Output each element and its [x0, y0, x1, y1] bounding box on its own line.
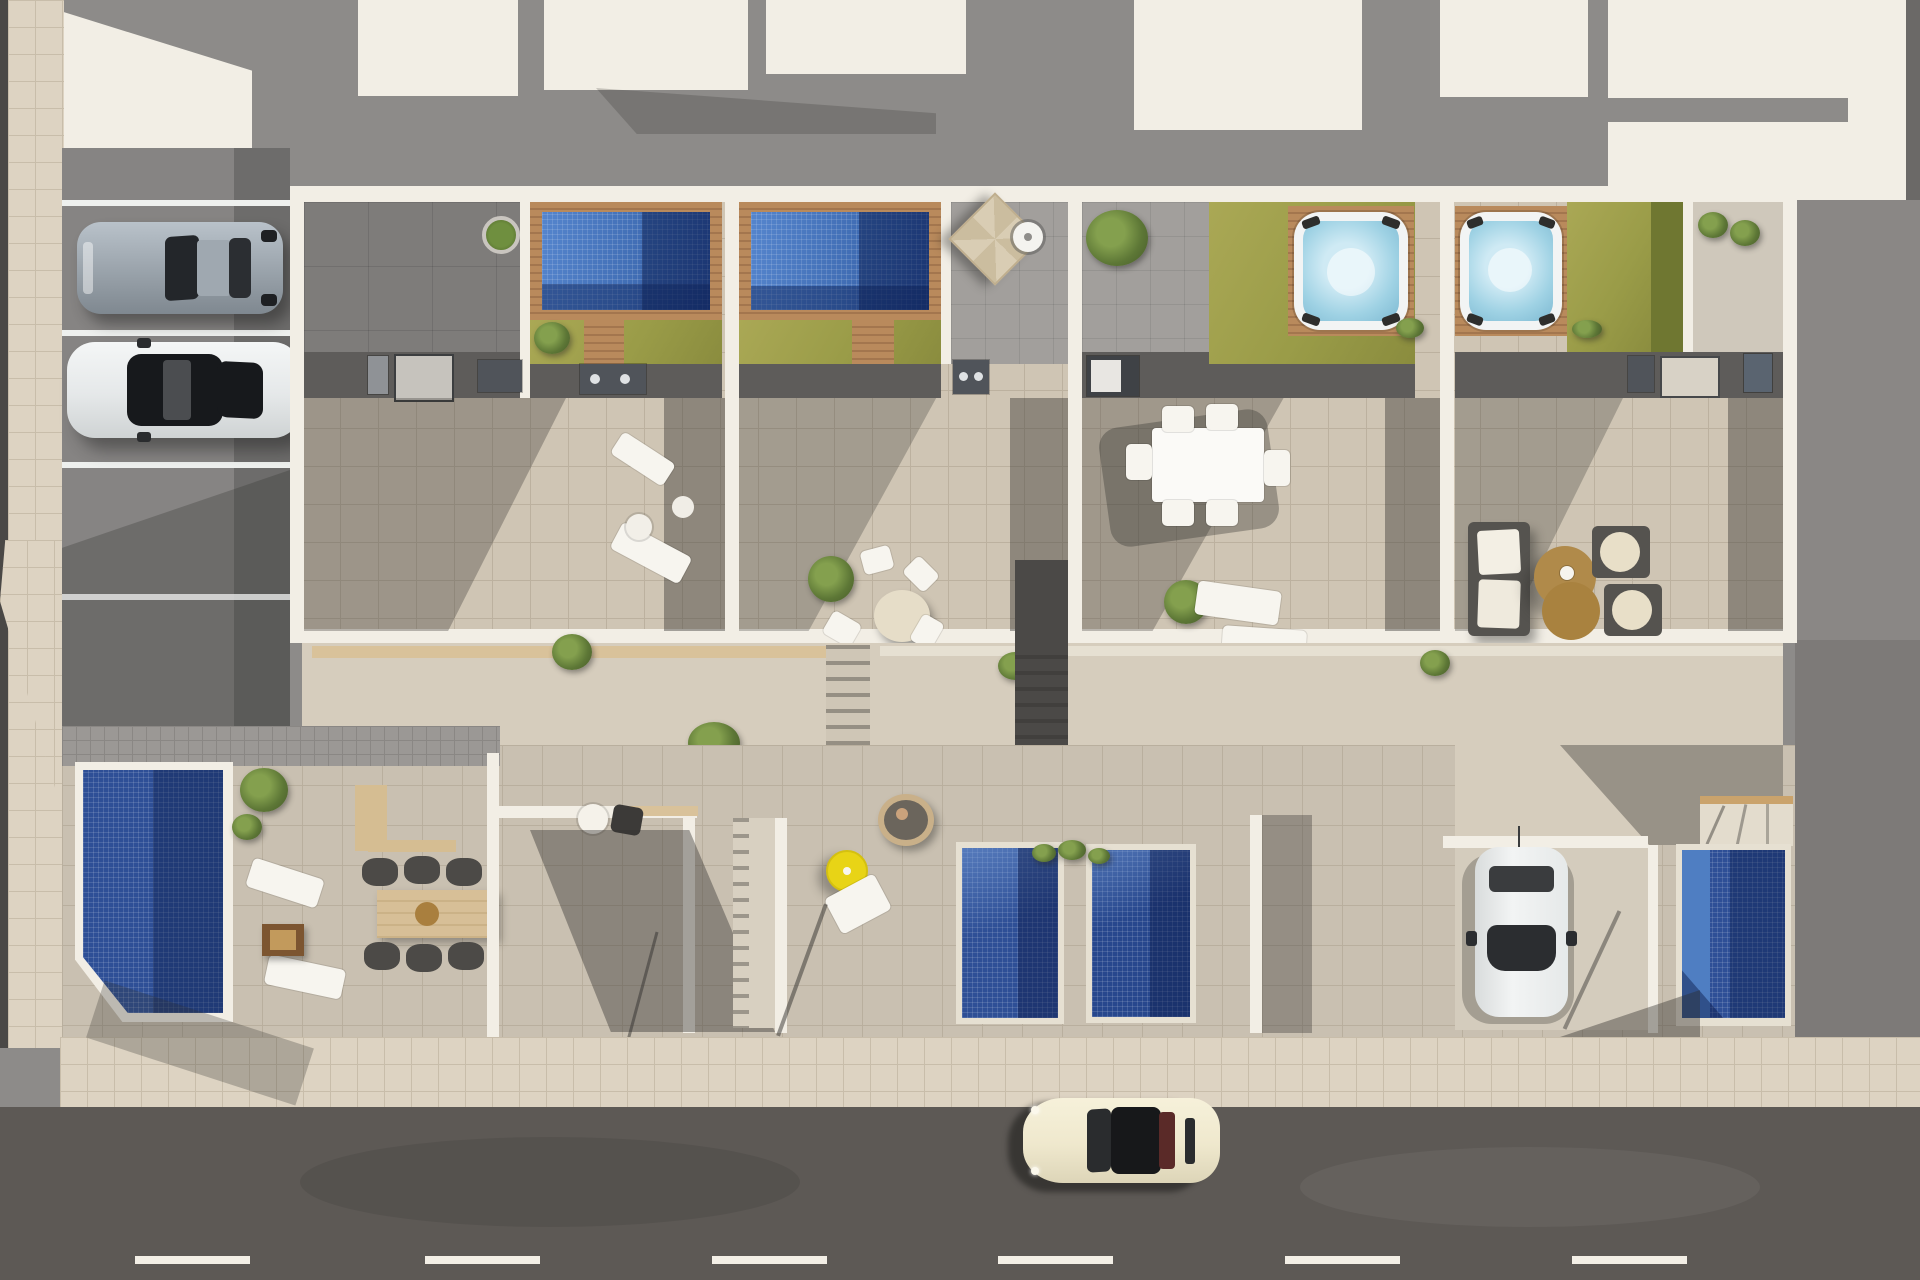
unitA-gray-tile-strip — [62, 726, 500, 766]
sink-bowl-2 — [620, 374, 630, 384]
unit4-sofa-frame — [1468, 522, 1530, 636]
white-car-mirror-top — [137, 338, 151, 348]
unit3-chair-e — [1264, 450, 1290, 486]
car-D-rear-glass — [1489, 866, 1554, 892]
cream-car-engine-vent — [1185, 1118, 1195, 1164]
roof-block-6-parapet-shadow — [1608, 98, 1848, 122]
unit3-wall-shadow-strip — [1385, 398, 1440, 631]
left-edge-wall — [0, 0, 8, 1048]
lane-dash-4 — [998, 1256, 1113, 1264]
fire-table-top — [270, 930, 296, 950]
parked-car-white — [67, 342, 301, 438]
unit2-sink-unit — [953, 360, 989, 394]
stair-line — [1766, 804, 1769, 846]
armchair-cushion — [1600, 532, 1640, 572]
pool-C-deep — [1150, 850, 1190, 1017]
unit4-appliance-1 — [1628, 356, 1654, 392]
unit3-chair-s1 — [1162, 500, 1194, 526]
unit4-table-decor — [1560, 566, 1574, 580]
terrace-top-wall — [290, 186, 1795, 202]
unit4-outdoor-kitchen — [1660, 356, 1720, 398]
silver-car-windshield — [165, 235, 199, 301]
lane-dash-6 — [1572, 1256, 1687, 1264]
unit4-coffee-table-2 — [1542, 582, 1600, 640]
rooftop-pool-1-water — [542, 212, 710, 310]
unit1-wall-shadow-strip — [664, 398, 725, 631]
sink-bowl — [974, 372, 983, 381]
sofa-cushion-1 — [1477, 529, 1521, 575]
unitB-bistro-table — [578, 804, 608, 834]
ground-pool-B-water — [962, 848, 1058, 1018]
unit3-dining-table — [1152, 428, 1264, 502]
ground-pool-C-water — [1092, 850, 1190, 1017]
unit1-lawn-bush — [534, 322, 570, 354]
unit4-kitchen-band — [1455, 352, 1783, 398]
unit1-outdoor-kitchen — [394, 354, 454, 402]
unit3-bbq-unit — [1087, 356, 1139, 396]
unitA-fire-table — [262, 924, 304, 956]
silver-car-rear-vent-r — [261, 294, 277, 306]
pool-2-shelf-shadow — [751, 286, 929, 310]
staircase-steps-edge — [733, 818, 749, 1028]
terrace-right-wall — [1783, 186, 1797, 643]
roof-block-3 — [766, 0, 966, 74]
silver-car-rear-glass — [229, 238, 251, 298]
street-car-cream — [1023, 1098, 1220, 1183]
unitA-chair-s1 — [364, 942, 400, 970]
right-lot-shaded — [1795, 640, 1920, 1040]
unit3-kitchen-band-b — [1209, 364, 1415, 398]
sink-bowl — [959, 372, 968, 381]
white-car-roof — [163, 360, 191, 420]
stairwell-steps — [1015, 655, 1068, 745]
unit1-side-table — [626, 514, 652, 540]
unit2-lawn — [739, 320, 941, 364]
lane-dash-1 — [135, 1256, 250, 1264]
unitA-chair-n3 — [446, 858, 482, 886]
unit1-lawn-steps — [584, 320, 624, 364]
roof-right-edge — [1906, 0, 1920, 210]
pool-vine-2 — [1058, 840, 1086, 860]
unit4-armchair-1 — [1592, 526, 1650, 578]
road-patch-1 — [300, 1137, 800, 1227]
roof-block-2 — [544, 0, 748, 90]
unit1-sink-unit — [580, 364, 646, 394]
cream-car-windshield — [1087, 1108, 1111, 1172]
unit1-potted-plant — [482, 216, 520, 254]
divider-shadow — [1262, 815, 1312, 1033]
unit4-palm-small-2 — [1730, 220, 1760, 246]
sink-bowl-1 — [590, 374, 600, 384]
ground-pool-A-water — [83, 770, 223, 1013]
unitC-hanging-chair — [878, 794, 934, 846]
unitA-timber-wall-h — [368, 840, 456, 852]
person-in-chair — [896, 808, 908, 820]
cream-car-headlight-r — [1031, 1167, 1039, 1175]
rooftop-pool-2-water — [751, 212, 929, 310]
unit2-kitchen-band — [739, 364, 941, 398]
car-D-mirror-right — [1566, 931, 1577, 946]
lane-dash-3 — [712, 1256, 827, 1264]
white-car-mirror-bottom — [137, 432, 151, 442]
unitB-staircase — [733, 818, 779, 1028]
unitD-staircase — [1700, 804, 1793, 846]
unitA-chair-n1 — [362, 858, 398, 886]
unitA-leaf-plant — [232, 814, 262, 840]
pool-1-shelf-shadow — [542, 284, 710, 310]
pool-B-deep — [1018, 848, 1058, 1018]
unit2-lawn-steps — [852, 320, 894, 364]
unitA-chair-s3 — [448, 942, 484, 970]
unit1-appliance-1 — [368, 356, 388, 394]
unitA-chair-n2 — [404, 856, 440, 884]
unit1-appliance-2 — [478, 360, 522, 392]
parasol-pole-top — [843, 867, 851, 875]
jacuzzi-2-shell — [1460, 212, 1562, 330]
bbq-counter — [1091, 360, 1121, 392]
road-patch-2 — [1300, 1147, 1760, 1227]
terrace-left-wall — [290, 186, 304, 643]
unitA-bush — [240, 768, 288, 812]
stair-line — [1706, 805, 1726, 845]
party-wall-3-4 — [1440, 198, 1454, 631]
unit4-wall-shadow-strip — [1728, 398, 1783, 631]
walkway-plant-4 — [1420, 650, 1450, 676]
car-D-windshield — [1487, 925, 1556, 971]
unit4-appliance-2 — [1744, 354, 1772, 392]
unit3-flower-tuft — [1396, 318, 1424, 338]
parking-line-3 — [62, 462, 296, 468]
armchair-cushion — [1612, 590, 1652, 630]
unit3-chair-w — [1126, 444, 1152, 480]
unitA-chair-s2 — [406, 944, 442, 972]
stairwell-dark — [1015, 560, 1068, 745]
unit2-patio-wall — [941, 202, 951, 364]
silver-car-rear-vent-l — [261, 230, 277, 242]
roof-block-4 — [1134, 0, 1362, 130]
unit3-chair-n2 — [1206, 404, 1238, 430]
pool-vine-1 — [1032, 844, 1056, 862]
cream-car-rear-window — [1159, 1112, 1175, 1169]
sofa-cushion-2 — [1477, 579, 1521, 628]
lane-dash-2 — [425, 1256, 540, 1264]
unitC-right-wall — [1250, 815, 1262, 1033]
pool-vine-3 — [1088, 848, 1110, 864]
parked-car-silver — [77, 222, 283, 314]
unit2-outdoor-shower — [1013, 222, 1043, 252]
unit4-armchair-2 — [1604, 584, 1662, 636]
pool-A-deep — [153, 770, 223, 1013]
jacuzzi-2-seat-ring — [1488, 248, 1532, 292]
party-wall-1-2 — [725, 198, 739, 631]
unit4-patio-wall — [1683, 202, 1693, 364]
shower-drain — [1024, 233, 1032, 241]
parking-line-4 — [62, 594, 296, 600]
aerial-render-scene — [0, 0, 1920, 1280]
left-walkway — [8, 0, 64, 1048]
roof-block-1 — [358, 0, 518, 96]
parking-line-2 — [62, 330, 296, 336]
unit3-chair-s2 — [1206, 500, 1238, 526]
unit4-lawn-shaded — [1651, 202, 1683, 364]
silver-car-hood-highlight — [83, 242, 93, 294]
driveway-car-white — [1475, 847, 1568, 1017]
unit1-ottoman — [672, 496, 694, 518]
stair-line — [1736, 804, 1748, 846]
cream-car-roof-glass — [1111, 1107, 1161, 1174]
cream-car-headlight-l — [1031, 1106, 1039, 1114]
unit4-lawn — [1567, 202, 1651, 364]
sidewalk — [60, 1037, 1920, 1107]
silver-car-roof — [197, 240, 231, 296]
lane-dash-5 — [1285, 1256, 1400, 1264]
stairs-upper-1 — [826, 645, 870, 745]
table-centerpiece — [415, 902, 439, 926]
unit2-fan-palm — [808, 556, 854, 602]
car-D-mirror-left — [1466, 931, 1477, 946]
walkway-plant-1 — [552, 634, 592, 670]
unit3-palm — [1086, 210, 1148, 266]
road — [0, 1107, 1920, 1280]
jacuzzi-1-seat-ring — [1327, 248, 1375, 296]
jacuzzi-1-shell — [1294, 212, 1408, 330]
unitA-timber-dining-table — [377, 890, 497, 938]
white-car-windshield — [217, 361, 263, 419]
unit4-palm-small-1 — [1698, 212, 1728, 238]
unit3-chair-n1 — [1162, 406, 1194, 432]
unitD-stairs-timber-edge — [1700, 796, 1793, 804]
parking-line-1 — [62, 200, 296, 206]
unitC-left-wall — [775, 818, 787, 1033]
roof-block-5 — [1440, 0, 1588, 97]
unit4-flower-tuft — [1572, 320, 1602, 338]
unitA-right-wall — [487, 753, 499, 1037]
pool-D-deep — [1730, 850, 1785, 1018]
party-wall-2-3 — [1068, 198, 1082, 631]
